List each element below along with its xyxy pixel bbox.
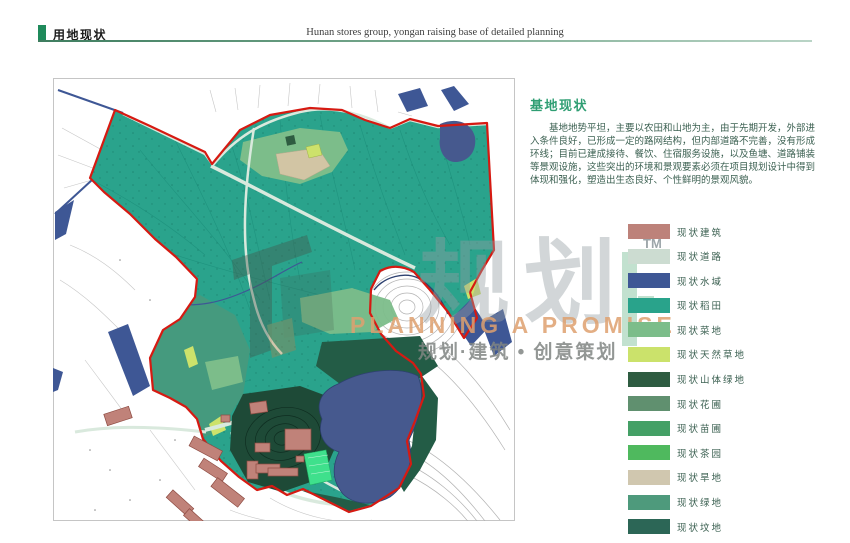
legend-swatch bbox=[628, 224, 670, 239]
legend-swatch bbox=[628, 347, 670, 362]
legend-swatch bbox=[628, 298, 670, 313]
legend-item: 现状花圃 bbox=[628, 396, 746, 411]
legend-label: 现状苗圃 bbox=[677, 421, 723, 435]
legend-swatch bbox=[628, 273, 670, 288]
legend-label: 现状茶园 bbox=[677, 446, 723, 460]
legend-item: 现状建筑 bbox=[628, 224, 746, 239]
section-paragraph: 基地地势平坦，主要以农田和山地为主，由于先期开发，外部进入条件良好，已形成一定的… bbox=[530, 122, 815, 187]
section-heading: 基地现状 bbox=[530, 95, 815, 114]
legend-swatch bbox=[628, 470, 670, 485]
legend-label: 现状山体绿地 bbox=[677, 372, 746, 386]
legend-swatch bbox=[628, 372, 670, 387]
legend-item: 现状稻田 bbox=[628, 298, 746, 313]
header-rule bbox=[38, 40, 812, 42]
legend-item: 现状茶园 bbox=[628, 445, 746, 460]
map-legend: 现状建筑 现状道路 现状水域 现状稻田 现状菜地 现状天然草地 现状山体绿地 bbox=[628, 224, 746, 534]
legend-label: 现状建筑 bbox=[677, 225, 723, 239]
legend-label: 现状坟地 bbox=[677, 520, 723, 534]
legend-label: 现状旱地 bbox=[677, 470, 723, 484]
legend-swatch bbox=[628, 322, 670, 337]
land-use-map-svg bbox=[53, 78, 515, 521]
legend-swatch bbox=[628, 421, 670, 436]
legend-item: 现状水域 bbox=[628, 273, 746, 288]
legend-label: 现状花圃 bbox=[677, 397, 723, 411]
land-use-map bbox=[53, 78, 515, 521]
legend-item: 现状坟地 bbox=[628, 519, 746, 534]
page: 用地现状 Hunan stores group, yongan raising … bbox=[0, 0, 850, 543]
legend-swatch bbox=[628, 396, 670, 411]
legend-item: 现状菜地 bbox=[628, 322, 746, 337]
legend-label: 现状天然草地 bbox=[677, 347, 746, 361]
legend-swatch bbox=[628, 445, 670, 460]
legend-label: 现状菜地 bbox=[677, 323, 723, 337]
legend-item: 现状山体绿地 bbox=[628, 372, 746, 387]
legend-item: 现状旱地 bbox=[628, 470, 746, 485]
legend-item: 现状苗圃 bbox=[628, 421, 746, 436]
legend-label: 现状绿地 bbox=[677, 495, 723, 509]
legend-label: 现状水域 bbox=[677, 274, 723, 288]
legend-item: 现状天然草地 bbox=[628, 347, 746, 362]
description-panel: 基地现状 基地地势平坦，主要以农田和山地为主，由于先期开发，外部进入条件良好，已… bbox=[530, 95, 815, 187]
legend-swatch bbox=[628, 519, 670, 534]
legend-item: 现状绿地 bbox=[628, 495, 746, 510]
legend-swatch bbox=[628, 249, 670, 264]
legend-label: 现状稻田 bbox=[677, 298, 723, 312]
legend-label: 现状道路 bbox=[677, 249, 723, 263]
header-accent-block bbox=[38, 25, 46, 40]
page-subtitle-en: Hunan stores group, yongan raising base … bbox=[260, 27, 610, 38]
legend-swatch bbox=[628, 495, 670, 510]
legend-item: 现状道路 bbox=[628, 249, 746, 264]
